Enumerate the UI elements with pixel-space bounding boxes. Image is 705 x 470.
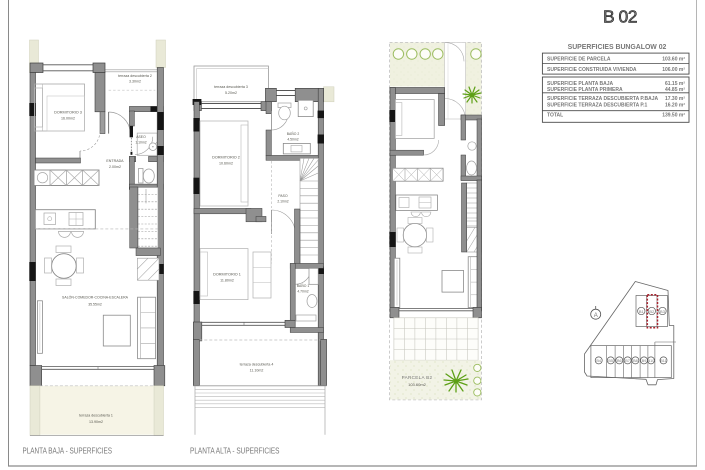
svg-text:BAÑO 2: BAÑO 2 bbox=[287, 131, 300, 136]
svg-text:SALÓN-COMEDOR-COCINA-ESCALERA: SALÓN-COMEDOR-COCINA-ESCALERA bbox=[62, 295, 129, 300]
svg-text:SUPERFICIE DE PARCELA: SUPERFICIE DE PARCELA bbox=[547, 57, 611, 63]
svg-text:1.10m2: 1.10m2 bbox=[135, 141, 146, 145]
svg-text:B4: B4 bbox=[596, 359, 601, 363]
svg-text:TOTAL: TOTAL bbox=[547, 112, 563, 118]
svg-text:106.00 m²: 106.00 m² bbox=[662, 67, 685, 73]
svg-text:5.20m2: 5.20m2 bbox=[225, 91, 237, 95]
svg-text:11.80m2: 11.80m2 bbox=[220, 279, 234, 283]
svg-text:A: A bbox=[594, 313, 598, 319]
svg-text:B6: B6 bbox=[617, 359, 622, 363]
svg-text:SUPERFICIE TERRAZA DESCUBIERTA: SUPERFICIE TERRAZA DESCUBIERTA P.BAJA bbox=[547, 96, 659, 102]
svg-text:SUPERFICIE PLANTA PRIMERA: SUPERFICIE PLANTA PRIMERA bbox=[547, 87, 623, 93]
svg-text:16.20 m²: 16.20 m² bbox=[665, 102, 685, 108]
svg-text:SUPERFICIES BUNGALOW 02: SUPERFICIES BUNGALOW 02 bbox=[568, 44, 667, 51]
svg-text:SUPERFICIE TERRAZA DESCUBIERTA: SUPERFICIE TERRAZA DESCUBIERTA P.1 bbox=[547, 102, 648, 108]
svg-text:17.30 m²: 17.30 m² bbox=[665, 96, 685, 102]
svg-text:13.90m2: 13.90m2 bbox=[89, 420, 103, 424]
svg-text:61.15 m²: 61.15 m² bbox=[665, 81, 685, 87]
svg-text:terraza descubierta 2: terraza descubierta 2 bbox=[118, 74, 152, 78]
svg-text:B5: B5 bbox=[608, 359, 613, 363]
svg-text:35.55m2: 35.55m2 bbox=[88, 303, 102, 307]
svg-text:PLANTA BAJA - SUPERFICIES: PLANTA BAJA - SUPERFICIES bbox=[23, 447, 113, 456]
svg-text:DORMITORIO 3: DORMITORIO 3 bbox=[54, 111, 82, 115]
svg-text:terraza descubierta 4: terraza descubierta 4 bbox=[240, 363, 274, 367]
svg-text:139.50 m²: 139.50 m² bbox=[662, 112, 685, 118]
svg-text:ASEO: ASEO bbox=[136, 135, 146, 139]
svg-text:PARCELA B2: PARCELA B2 bbox=[402, 375, 433, 380]
svg-text:SUPERFICIE CONSTRUIDA VIVIENDA: SUPERFICIE CONSTRUIDA VIVIENDA bbox=[547, 67, 637, 73]
svg-text:11.10m2: 11.10m2 bbox=[250, 369, 264, 373]
svg-text:2.00m2: 2.00m2 bbox=[109, 165, 121, 169]
svg-text:DORMITORIO 2: DORMITORIO 2 bbox=[212, 156, 240, 160]
svg-text:DORMITORIO 1: DORMITORIO 1 bbox=[213, 273, 241, 277]
svg-text:103.60m2: 103.60m2 bbox=[408, 382, 427, 387]
svg-text:B1: B1 bbox=[639, 309, 645, 314]
svg-text:2.10m2: 2.10m2 bbox=[277, 200, 288, 204]
svg-text:10.60m2: 10.60m2 bbox=[219, 162, 233, 166]
svg-text:4.50m2: 4.50m2 bbox=[287, 138, 298, 142]
svg-text:44.85 m²: 44.85 m² bbox=[665, 87, 685, 93]
svg-text:B8: B8 bbox=[633, 359, 638, 363]
svg-text:B3: B3 bbox=[660, 309, 666, 314]
svg-text:PASO: PASO bbox=[278, 194, 288, 198]
svg-text:SUPERFICIE PLANTA BAJA: SUPERFICIE PLANTA BAJA bbox=[547, 81, 614, 87]
svg-text:terraza descubierta 1: terraza descubierta 1 bbox=[79, 414, 113, 418]
svg-text:B10: B10 bbox=[648, 359, 655, 363]
svg-text:4.70m2: 4.70m2 bbox=[297, 290, 308, 294]
svg-text:B7: B7 bbox=[625, 359, 630, 363]
svg-text:PLANTA ALTA - SUPERFICIES: PLANTA ALTA - SUPERFICIES bbox=[190, 447, 280, 456]
svg-text:B2: B2 bbox=[649, 309, 655, 314]
svg-text:B 02: B 02 bbox=[603, 7, 637, 27]
svg-text:16.00m2: 16.00m2 bbox=[61, 117, 75, 121]
svg-text:terraza descubierta 3: terraza descubierta 3 bbox=[214, 85, 248, 89]
svg-text:B9: B9 bbox=[642, 359, 647, 363]
svg-text:3.30m2: 3.30m2 bbox=[129, 79, 141, 83]
svg-text:103.60 m²: 103.60 m² bbox=[662, 57, 685, 63]
svg-text:ENTRADA: ENTRADA bbox=[106, 159, 124, 163]
svg-text:B11: B11 bbox=[660, 359, 666, 363]
